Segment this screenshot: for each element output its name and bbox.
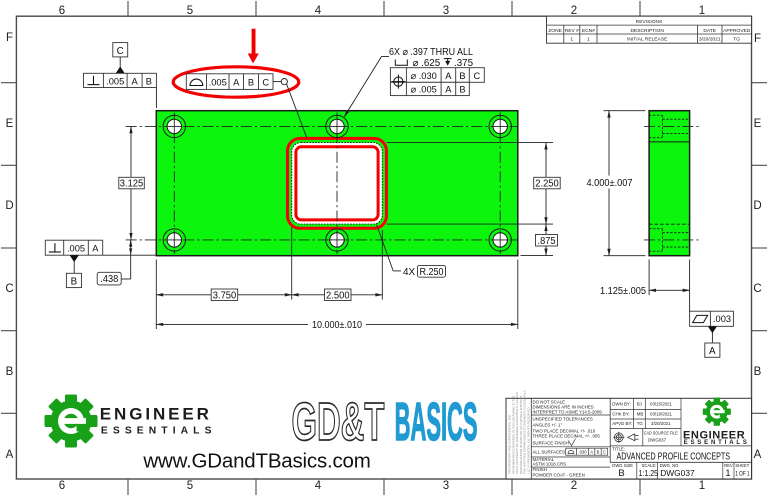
svg-text:C: C: [262, 77, 269, 87]
svg-text:C: C: [473, 71, 480, 81]
svg-text:MB: MB: [637, 411, 644, 416]
svg-text:.005: .005: [209, 77, 227, 87]
svg-text:5: 5: [187, 5, 193, 17]
svg-text:1: 1: [699, 480, 705, 492]
svg-text:F: F: [6, 32, 13, 44]
svg-text:ZONE: ZONE: [548, 28, 562, 34]
svg-text:A: A: [131, 76, 138, 86]
svg-text:A: A: [445, 71, 452, 81]
svg-text:4X: 4X: [403, 267, 415, 278]
svg-text:DWG037: DWG037: [648, 438, 667, 443]
svg-text:ALL SURFACES: ALL SURFACES: [533, 450, 566, 455]
svg-text:1: 1: [570, 37, 573, 43]
svg-text:ADVANCED PROFILE CONCEPTS: ADVANCED PROFILE CONCEPTS: [617, 452, 731, 463]
svg-text:.375: .375: [454, 58, 474, 69]
svg-text:ECN#: ECN#: [582, 28, 595, 34]
svg-text:BASICS: BASICS: [395, 392, 478, 452]
svg-text:B: B: [248, 77, 254, 87]
svg-text:1: 1: [726, 468, 731, 478]
svg-text:.438: .438: [100, 274, 118, 285]
svg-text:R.250: R.250: [420, 267, 444, 278]
svg-text:E: E: [754, 118, 762, 130]
svg-text:REV #: REV #: [565, 28, 579, 34]
svg-text:3.125: 3.125: [120, 179, 144, 190]
svg-text:ASTM 1018 CRS: ASTM 1018 CRS: [533, 461, 567, 466]
svg-text:TG: TG: [637, 421, 644, 426]
svg-text:5: 5: [187, 480, 193, 492]
svg-text:1: 1: [587, 37, 590, 43]
svg-text:1:1.25: 1:1.25: [639, 469, 659, 478]
svg-text:B: B: [459, 84, 465, 94]
svg-text:A: A: [709, 346, 716, 357]
svg-text:SCALE:: SCALE:: [642, 463, 657, 468]
svg-text:3.750: 3.750: [213, 290, 237, 301]
svg-text:ESSENTIALS: ESSENTIALS: [684, 440, 750, 446]
svg-text:SHEET: SHEET: [735, 463, 749, 468]
svg-text:A: A: [445, 84, 452, 94]
svg-text:INTERPRET TO ASME Y14.5-2009: INTERPRET TO ASME Y14.5-2009: [533, 409, 603, 414]
svg-text:DESCRIPTION: DESCRIPTION: [630, 28, 664, 34]
svg-text:.030: .030: [578, 449, 587, 454]
svg-text:2.250: 2.250: [535, 179, 559, 190]
svg-text:4: 4: [315, 480, 322, 492]
svg-text:B: B: [6, 366, 14, 378]
svg-text:TWO PLACE DECIMAL +/- .010: TWO PLACE DECIMAL +/- .010: [533, 428, 596, 433]
svg-text:6: 6: [59, 5, 65, 17]
svg-text:DATE: DATE: [703, 28, 716, 34]
svg-text:4.000±.007: 4.000±.007: [587, 178, 633, 189]
svg-text:C: C: [753, 283, 761, 295]
svg-text:D: D: [5, 200, 13, 212]
svg-text:2: 2: [571, 5, 577, 17]
svg-text:⌀ .030: ⌀ .030: [411, 71, 437, 81]
svg-text:POWDER COAT - GREEN: POWDER COAT - GREEN: [533, 472, 585, 477]
svg-text:SURFACE FINISH: SURFACE FINISH: [533, 440, 569, 445]
svg-text:.005: .005: [67, 244, 85, 254]
svg-text:APVD BY:: APVD BY:: [612, 421, 632, 426]
svg-text:B: B: [146, 76, 152, 86]
svg-text:UNSPECIFIED TOLERANCES: UNSPECIFIED TOLERANCES: [533, 417, 593, 422]
svg-text:B: B: [618, 468, 624, 479]
svg-text:⌀ .625: ⌀ .625: [413, 58, 441, 69]
svg-text:03/15/2021: 03/15/2021: [650, 401, 673, 406]
svg-text:B: B: [754, 366, 762, 378]
svg-text:1.125±.005: 1.125±.005: [600, 286, 647, 297]
svg-text:E: E: [6, 118, 14, 130]
svg-text:CAD SOURCE FILE: CAD SOURCE FILE: [644, 431, 678, 436]
svg-text:C: C: [5, 283, 13, 295]
svg-text:2.500: 2.500: [326, 290, 350, 301]
svg-text:THREE PLACE DECIMAL +/- .005: THREE PLACE DECIMAL +/- .005: [533, 434, 601, 439]
svg-text:ENGINEER: ENGINEER: [100, 405, 212, 424]
svg-text:www.GDandTBasics.com: www.GDandTBasics.com: [142, 450, 370, 473]
svg-text:ANGLES +/- 1°: ANGLES +/- 1°: [533, 422, 563, 427]
svg-text:3/20/2021: 3/20/2021: [651, 421, 671, 426]
svg-text:INITIAL RELEASE: INITIAL RELEASE: [627, 37, 668, 43]
svg-text:3/20/2021: 3/20/2021: [699, 37, 721, 43]
svg-text:TG: TG: [733, 37, 740, 43]
svg-text:A: A: [92, 244, 99, 254]
svg-text:10.000±.010: 10.000±.010: [312, 320, 362, 331]
svg-text:C: C: [117, 46, 124, 57]
svg-text:GD&T: GD&T: [292, 393, 385, 452]
svg-text:F: F: [754, 33, 761, 45]
svg-text:REVISIONS: REVISIONS: [636, 19, 663, 25]
svg-text:B: B: [597, 449, 600, 454]
svg-text:1: 1: [699, 5, 705, 17]
svg-text:D: D: [753, 200, 761, 212]
svg-text:6X ⌀ .397 THRU ALL: 6X ⌀ .397 THRU ALL: [389, 47, 473, 58]
svg-text:ESSENTIALS: ESSENTIALS: [101, 425, 217, 436]
svg-text:CHK BY:: CHK BY:: [612, 411, 629, 416]
svg-text:1 OF 1: 1 OF 1: [735, 471, 750, 478]
svg-text:B: B: [71, 277, 78, 288]
svg-text:.875: .875: [538, 236, 556, 247]
svg-text:DWG037: DWG037: [660, 468, 695, 478]
svg-text:FINISH: FINISH: [533, 467, 547, 472]
svg-text:A: A: [6, 449, 14, 461]
svg-text:A: A: [233, 77, 240, 87]
svg-text:03/19/2021: 03/19/2021: [650, 411, 673, 416]
svg-text:A: A: [590, 449, 593, 454]
svg-text:DWN BY:: DWN BY:: [612, 401, 631, 406]
svg-text:B: B: [459, 71, 465, 81]
svg-text:3: 3: [443, 5, 449, 17]
svg-text:6: 6: [59, 480, 65, 492]
svg-text:⌀ .005: ⌀ .005: [411, 84, 437, 94]
svg-text:A: A: [754, 449, 762, 461]
svg-text:3: 3: [443, 480, 449, 492]
svg-text:C: C: [603, 449, 606, 454]
svg-text:.005: .005: [106, 76, 124, 86]
svg-text:4: 4: [315, 5, 322, 17]
svg-text:2: 2: [571, 480, 577, 492]
svg-text:BJ: BJ: [637, 401, 642, 406]
svg-text:LLC IS PROHIBITED. ALL RIGHTS: LLC IS PROHIBITED. ALL RIGHTS RESERVED: [527, 407, 531, 474]
svg-text:APPROVED: APPROVED: [723, 28, 751, 34]
svg-text:.003: .003: [713, 314, 731, 324]
